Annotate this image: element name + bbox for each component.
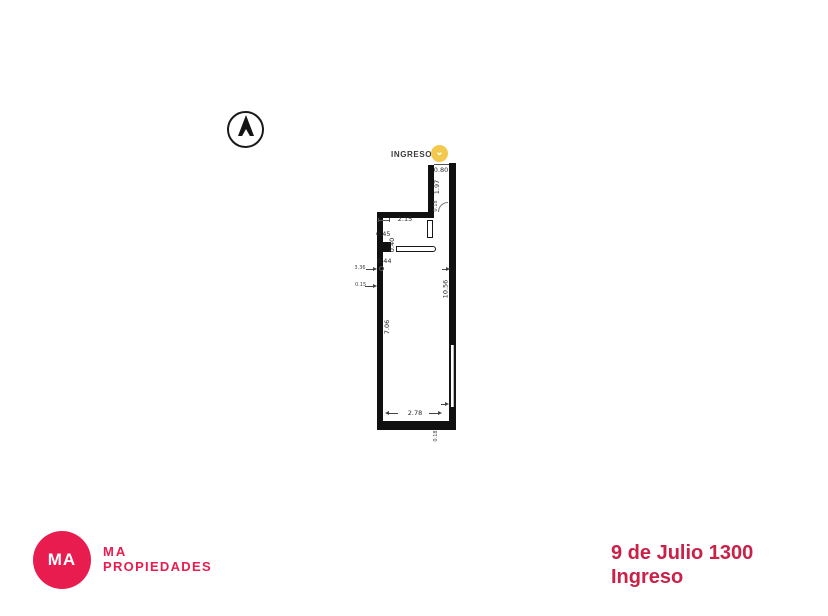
- floorplan-page: INGRESO ⌄ 0.80 1.97 0.18 2.15 0.45 0.40 …: [0, 0, 828, 616]
- wall-bottom: [377, 421, 456, 430]
- north-compass-icon: [227, 111, 264, 148]
- arrow-right-icon: [438, 411, 442, 415]
- company-name-line1: MA: [103, 544, 212, 559]
- company-wordmark: MA PROPIEDADES: [103, 544, 212, 574]
- address-line1: 9 de Julio 1300: [611, 541, 753, 565]
- arrow-right-icon: [373, 284, 377, 288]
- dim-left-offset-upper: 3.36: [354, 265, 366, 271]
- reference-tick: [379, 266, 384, 271]
- dim-top-width: 2.15: [394, 215, 416, 223]
- dim-niche-lower: 0.44: [377, 257, 391, 265]
- dim-left-offset-lower: 0.15: [355, 282, 366, 288]
- floor-plan: 0.80 1.97 0.18 2.15 0.45 0.40 0.44 3.36 …: [354, 145, 464, 455]
- dim-right-wall-length: 10.56: [442, 278, 450, 301]
- door-leaf: [427, 220, 433, 238]
- window-glass-line: [453, 345, 454, 407]
- dim-door-opening: 0.80: [433, 166, 449, 174]
- dim-bottom-width: 2.78: [402, 409, 428, 417]
- arrow-right-icon: [445, 402, 449, 406]
- property-address: 9 de Julio 1300 Ingreso: [611, 541, 753, 589]
- wall-right-upper: [449, 163, 456, 345]
- ma-logo: MA: [33, 531, 91, 589]
- dim-corridor-length: 1.97: [433, 177, 441, 197]
- address-line2: Ingreso: [611, 565, 753, 589]
- north-arrow-notch: [241, 129, 251, 138]
- dim-bottom-wall-thickness: 0.18: [433, 429, 439, 443]
- window-right: [449, 345, 456, 407]
- small-dimension-marker: [378, 215, 390, 221]
- dim-left-wall-length: 7.06: [383, 317, 391, 337]
- ma-logo-initials: MA: [48, 550, 76, 570]
- dim-line-bottom-left: [389, 413, 398, 414]
- dim-line-bottom-right: [429, 413, 438, 414]
- counter: [396, 246, 436, 252]
- company-name-line2: PROPIEDADES: [103, 559, 212, 574]
- dim-column-depth: 0.40: [388, 237, 396, 253]
- door-swing-arc: [438, 202, 448, 212]
- arrow-right-icon: [446, 267, 450, 271]
- door-threshold-line: [434, 164, 449, 165]
- arrow-right-icon: [373, 267, 377, 271]
